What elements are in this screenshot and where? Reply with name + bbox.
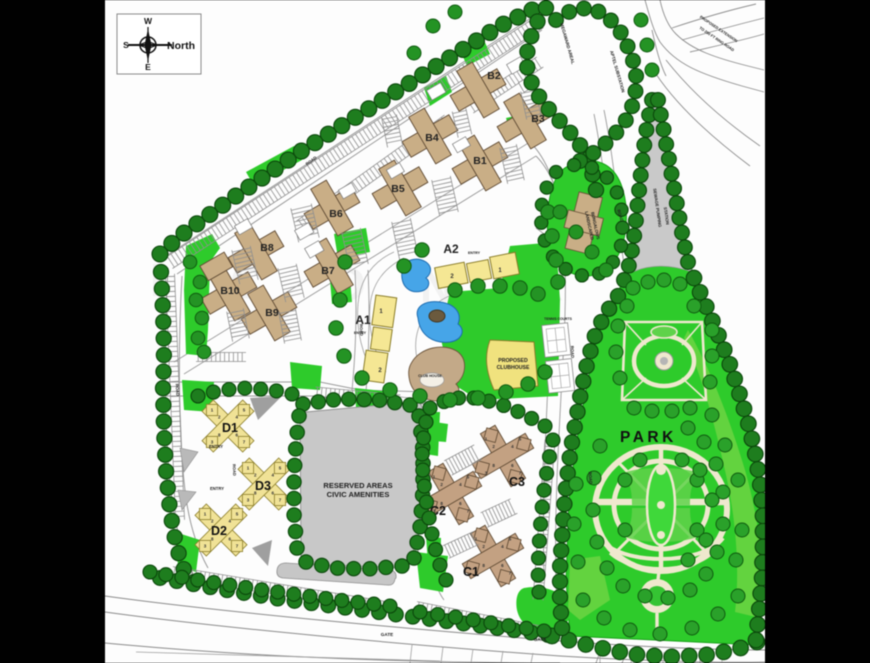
svg-text:B3: B3 bbox=[531, 113, 545, 125]
svg-text:CLUBHOUSE: CLUBHOUSE bbox=[497, 365, 530, 371]
svg-text:ENTRY: ENTRY bbox=[209, 444, 223, 449]
svg-text:TENNIS COURTS: TENNIS COURTS bbox=[544, 317, 572, 321]
svg-text:PROPOSED: PROPOSED bbox=[498, 358, 528, 364]
svg-text:ROAD: ROAD bbox=[232, 464, 237, 476]
svg-text:B2: B2 bbox=[487, 70, 501, 82]
svg-text:RESERVED AREAS: RESERVED AREAS bbox=[323, 481, 392, 490]
svg-text:W: W bbox=[144, 16, 153, 26]
svg-text:B4: B4 bbox=[425, 132, 439, 144]
svg-text:E: E bbox=[145, 62, 151, 72]
svg-text:PARK: PARK bbox=[620, 429, 677, 446]
svg-text:ROAD: ROAD bbox=[570, 346, 575, 359]
svg-text:GATE: GATE bbox=[534, 637, 546, 642]
svg-text:A2: A2 bbox=[443, 242, 459, 256]
svg-text:CLUB HOUSE: CLUB HOUSE bbox=[418, 374, 442, 378]
svg-text:GATE: GATE bbox=[381, 632, 393, 637]
svg-text:D1: D1 bbox=[222, 421, 238, 435]
svg-text:ENTRY: ENTRY bbox=[210, 486, 224, 491]
svg-text:B9: B9 bbox=[265, 307, 279, 319]
svg-text:ENTRY: ENTRY bbox=[468, 251, 481, 255]
svg-text:B7: B7 bbox=[321, 265, 335, 277]
svg-text:B10: B10 bbox=[220, 285, 239, 297]
svg-text:S: S bbox=[123, 40, 129, 50]
svg-text:ROAD: ROAD bbox=[359, 324, 364, 336]
svg-text:D2: D2 bbox=[211, 524, 227, 538]
svg-text:B6: B6 bbox=[329, 208, 343, 220]
svg-text:B5: B5 bbox=[391, 183, 405, 195]
svg-text:D3: D3 bbox=[255, 479, 271, 493]
svg-text:B8: B8 bbox=[260, 242, 274, 254]
svg-text:North: North bbox=[167, 40, 195, 52]
svg-text:B1: B1 bbox=[473, 155, 487, 167]
svg-text:C3: C3 bbox=[509, 475, 525, 489]
svg-text:C1: C1 bbox=[463, 565, 479, 579]
svg-text:CIVIC AMENITIES: CIVIC AMENITIES bbox=[327, 490, 390, 499]
